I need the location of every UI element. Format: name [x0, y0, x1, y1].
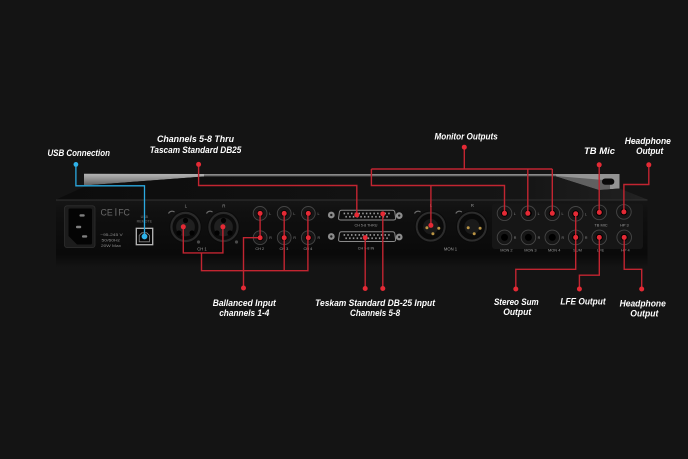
svg-text:R: R: [318, 236, 321, 240]
svg-text:R: R: [293, 236, 296, 240]
svg-text:L: L: [318, 212, 320, 216]
svg-text:Output: Output: [503, 307, 532, 317]
svg-text:LFE Output: LFE Output: [560, 297, 606, 307]
svg-text:CH 5-8 THRU: CH 5-8 THRU: [355, 224, 378, 228]
svg-text:Stereo Sum: Stereo Sum: [494, 297, 539, 307]
svg-text:TB Mic: TB Mic: [584, 146, 615, 156]
svg-text:Monitor Outputs: Monitor Outputs: [434, 131, 497, 141]
svg-text:Headphone: Headphone: [625, 136, 671, 146]
svg-text:L: L: [514, 212, 516, 216]
svg-text:CH 2: CH 2: [255, 246, 264, 251]
svg-text:SUM: SUM: [573, 248, 582, 253]
svg-text:R: R: [585, 236, 588, 240]
svg-text:R: R: [269, 236, 272, 240]
svg-text:L: L: [269, 212, 271, 216]
svg-text:Headphone: Headphone: [620, 299, 666, 309]
svg-text:CH 5-8 IN: CH 5-8 IN: [358, 247, 375, 251]
svg-text:FC: FC: [118, 207, 130, 217]
svg-text:LFE: LFE: [597, 248, 605, 253]
svg-text:MON 3: MON 3: [524, 248, 536, 253]
svg-text:R: R: [471, 203, 474, 208]
svg-text:Output: Output: [636, 146, 664, 156]
svg-text:Teskam Standard DB-25 Input: Teskam Standard DB-25 Input: [315, 298, 436, 308]
svg-text:CH 1: CH 1: [197, 247, 207, 252]
svg-text:USB Connection: USB Connection: [47, 148, 110, 158]
svg-text:R: R: [222, 204, 225, 209]
svg-text:Channels 5-8: Channels 5-8: [350, 308, 401, 318]
svg-text:L: L: [538, 212, 540, 216]
svg-text:Ballanced Input: Ballanced Input: [213, 298, 277, 308]
svg-text:~95-245 V: ~95-245 V: [100, 233, 123, 237]
svg-text:L: L: [562, 212, 564, 216]
svg-text:R: R: [514, 236, 517, 240]
svg-text:CE: CE: [101, 207, 113, 217]
svg-text:MON 1: MON 1: [444, 247, 458, 252]
svg-text:L: L: [585, 212, 587, 216]
svg-text:Tascam Standard DB25: Tascam Standard DB25: [150, 145, 242, 155]
svg-text:R: R: [538, 236, 541, 240]
svg-text:MON 4: MON 4: [548, 248, 561, 253]
svg-text:MON 2: MON 2: [500, 248, 512, 253]
svg-text:20W Max: 20W Max: [101, 244, 121, 248]
svg-text:Output: Output: [630, 309, 659, 319]
svg-text:HP 4: HP 4: [621, 248, 630, 253]
svg-text:channels 1-4: channels 1-4: [219, 308, 269, 318]
svg-text:TB MIC: TB MIC: [594, 222, 607, 227]
svg-text:HP 3: HP 3: [620, 222, 629, 227]
svg-text:L: L: [293, 212, 295, 216]
svg-text:R: R: [562, 236, 565, 240]
svg-text:Channels 5-8 Thru: Channels 5-8 Thru: [157, 134, 234, 144]
svg-text:50/60Hz: 50/60Hz: [102, 239, 121, 243]
